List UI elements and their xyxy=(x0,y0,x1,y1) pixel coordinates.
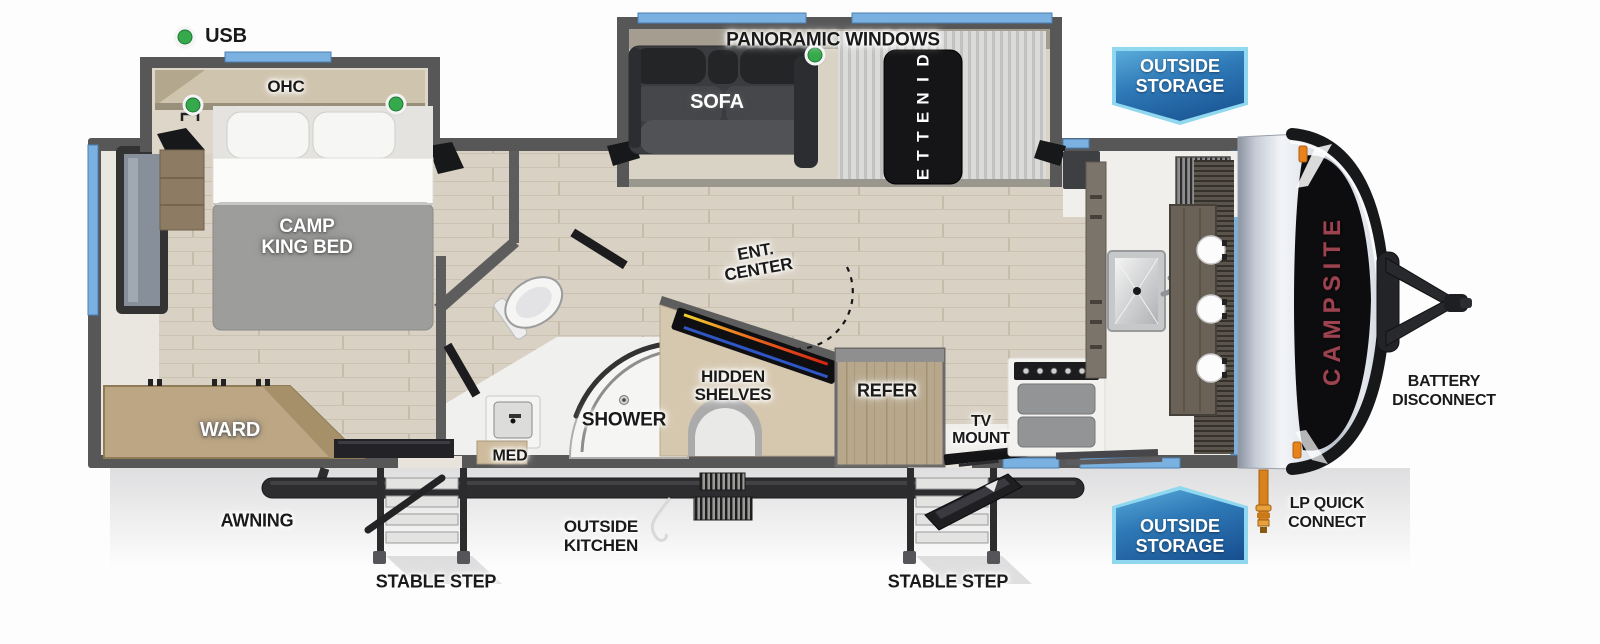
hitch xyxy=(1377,252,1472,352)
lp-quick-connect-label: LP QUICKCONNECT xyxy=(1288,494,1366,532)
bedroom-slide-dot-right xyxy=(389,97,404,112)
marker-light-bottom xyxy=(1293,442,1301,458)
ohc-label: OHC xyxy=(267,78,304,96)
panoramic-windows-label: PANORAMIC WINDOWS xyxy=(726,31,940,52)
dinette-label: DINETTE xyxy=(916,51,929,184)
tv-mount-label: TVMOUNT xyxy=(952,413,1010,447)
hidden-shelves-label: HIDDENSHELVES xyxy=(695,368,772,404)
stable-step-left-label: STABLE STEP xyxy=(376,572,496,591)
floorplan-graphic xyxy=(0,0,1600,644)
med-label: MED xyxy=(493,447,528,464)
refrigerator xyxy=(836,349,944,466)
usb-dot xyxy=(178,30,193,45)
bedroom-counter xyxy=(334,439,454,458)
front-cap xyxy=(1238,134,1384,469)
rv-floorplan: USB OHC PANORAMIC WINDOWS SOFA DINETTE C… xyxy=(0,0,1600,644)
bedroom-slide-dot-left xyxy=(186,98,201,113)
outside-kitchen-label: OUTSIDEKITCHEN xyxy=(564,517,638,555)
brand-label: CAMPSITE xyxy=(1319,214,1347,386)
awning-label: AWNING xyxy=(221,511,294,530)
battery-disconnect-label: BATTERYDISCONNECT xyxy=(1392,372,1496,410)
stable-step-right-label: STABLE STEP xyxy=(888,572,1008,591)
ward-label: WARD xyxy=(200,420,260,442)
outside-storage-badge-top: OUTSIDE STORAGE xyxy=(1112,47,1248,125)
outside-storage-badge-bottom: OUTSIDE STORAGE xyxy=(1112,486,1248,564)
usb-label: USB xyxy=(205,26,247,48)
nightstand xyxy=(160,150,204,230)
marker-light-top xyxy=(1299,146,1307,162)
camp-king-bed-label: CAMPKING BED xyxy=(261,216,352,258)
sofa-label: SOFA xyxy=(690,92,744,114)
refer-label: REFER xyxy=(857,381,917,400)
kitchen-sink xyxy=(1108,251,1174,331)
bar-stools xyxy=(1197,236,1227,382)
shower-label: SHOWER xyxy=(582,411,666,432)
